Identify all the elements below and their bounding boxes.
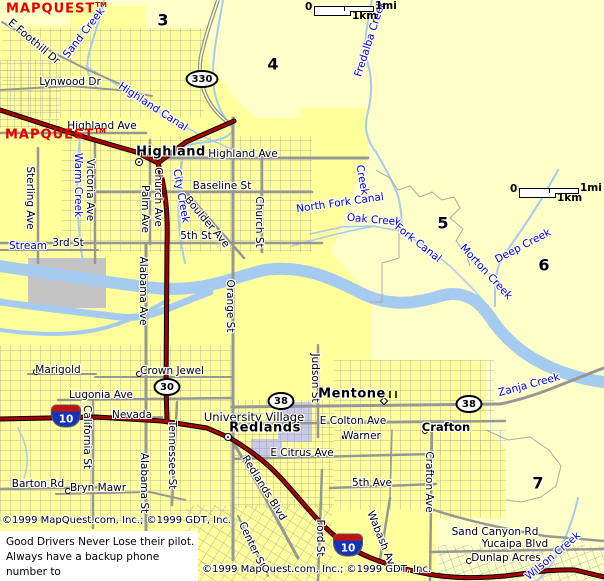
scale-zero-label: 0	[305, 1, 312, 13]
scale-km-bar	[314, 11, 351, 16]
watermark-text: MAPQUEST	[6, 1, 95, 16]
mapquest-watermark-2: MAPQUESTTM	[5, 127, 106, 142]
mapquest-watermark-1: MAPQUESTTM	[6, 1, 107, 16]
scale-mile-label: 1mi	[375, 0, 397, 12]
watermark-tm: TM	[94, 127, 106, 135]
map-graphics	[0, 0, 604, 581]
scale-bar-middle: 0 1mi 1km	[510, 183, 604, 203]
scale-km-bar	[519, 193, 556, 198]
scale-bar-top: 0 1mi 1km	[305, 1, 405, 21]
scale-zero-label: 0	[510, 183, 517, 195]
copyright-line-1: ©1999 MapQuest.com, Inc.; ©1999 GDT, Inc…	[2, 515, 231, 526]
scale-km-label: 1km	[352, 10, 377, 22]
scale-km-label: 1km	[557, 192, 582, 204]
scale-mile-label: 1mi	[580, 182, 602, 194]
ad-line-2: Always have a backup phone number to	[6, 550, 198, 580]
copyright-line-2: ©1999 MapQuest.com, Inc.; ©1999 GDT, Inc…	[202, 564, 431, 575]
watermark-text: MAPQUEST	[5, 127, 94, 142]
map-canvas[interactable]: E Foothill DrLynwood DrHighland AveHighl…	[0, 0, 604, 581]
ad-box[interactable]: Good Drivers Never Lose their pilot. Alw…	[0, 531, 198, 581]
ad-line-1: Good Drivers Never Lose their pilot.	[6, 535, 198, 550]
watermark-tm: TM	[95, 1, 107, 9]
